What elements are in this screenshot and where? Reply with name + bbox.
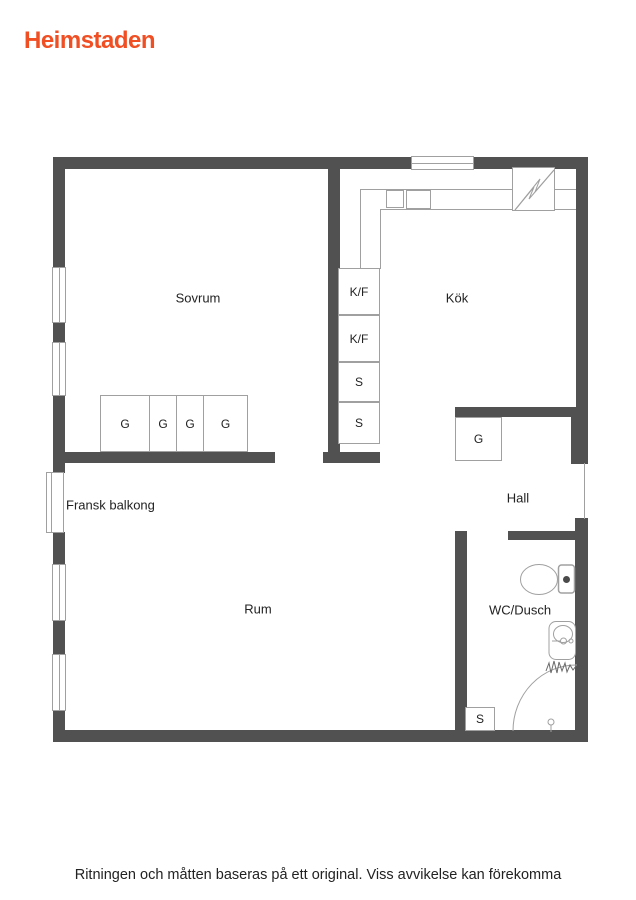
room-label-rum: Rum — [244, 602, 271, 617]
window-symbol — [52, 342, 66, 396]
entrance-opening-line — [584, 463, 585, 519]
wall-left-5 — [53, 620, 65, 655]
wardrobe-box: G — [203, 396, 247, 451]
wc-cabinet-box: S — [465, 707, 495, 731]
wardrobe-label: G — [158, 417, 167, 431]
kitchen-sink-symbol — [386, 190, 404, 208]
cabinet-label: S — [355, 416, 363, 430]
wardrobe-label: G — [221, 417, 230, 431]
brand-logo: Heimstaden — [24, 27, 155, 55]
shower-drain-icon — [548, 719, 554, 725]
cabinet-label: S — [355, 375, 363, 389]
wardrobe-label: G — [185, 417, 194, 431]
floorplan-page: Heimstaden K/F K/F S S — [0, 0, 636, 900]
kitchen-counter-line — [380, 209, 381, 269]
toilet-icon — [520, 561, 576, 598]
wardrobe-box: G — [149, 396, 176, 451]
wall-sovrum-bottom — [53, 452, 275, 463]
hall-wardrobe-box: G — [455, 417, 502, 461]
kitchen-sink-symbol — [406, 190, 431, 209]
cabinet-box: S — [338, 362, 380, 402]
fridge-freezer-box: K/F — [338, 268, 380, 315]
room-label-wc-dusch: WC/Dusch — [489, 603, 551, 618]
wall-left-4 — [53, 532, 65, 565]
wall-left-2 — [53, 322, 65, 343]
room-label-hall: Hall — [507, 491, 529, 506]
wall-left-1 — [53, 157, 65, 268]
wall-kok-hall — [455, 407, 576, 417]
wardrobe-row: G G G G — [100, 395, 248, 452]
wardrobe-box: G — [176, 396, 203, 451]
window-symbol — [52, 267, 66, 323]
window-symbol — [52, 654, 66, 711]
room-label-sovrum: Sovrum — [176, 291, 221, 306]
fridge-freezer-label: K/F — [350, 285, 369, 299]
lightning-bolt-icon — [513, 168, 556, 212]
window-symbol — [411, 156, 474, 170]
fridge-freezer-box: K/F — [338, 315, 380, 362]
wall-sovrum-bottom-stub — [323, 452, 380, 463]
wall-wc-top — [508, 531, 588, 540]
wall-top — [53, 157, 588, 169]
shower-curtain-icon — [546, 661, 576, 673]
room-label-fransk-balkong: Fransk balkong — [66, 498, 155, 513]
wardrobe-label: G — [474, 432, 483, 446]
kitchen-counter-line — [360, 189, 361, 268]
wardrobe-label: G — [120, 417, 129, 431]
wall-right-1 — [576, 157, 588, 407]
electrical-panel-box — [512, 167, 555, 211]
cabinet-label: S — [476, 712, 484, 726]
window-symbol — [52, 564, 66, 621]
shower-icon — [498, 653, 588, 743]
cabinet-box: S — [338, 402, 380, 444]
balcony-door-symbol — [46, 472, 64, 533]
fridge-freezer-label: K/F — [350, 332, 369, 346]
room-label-kok: Kök — [446, 291, 468, 306]
disclaimer-text: Ritningen och måtten baseras på ett orig… — [0, 867, 636, 883]
wardrobe-box: G — [101, 396, 149, 451]
